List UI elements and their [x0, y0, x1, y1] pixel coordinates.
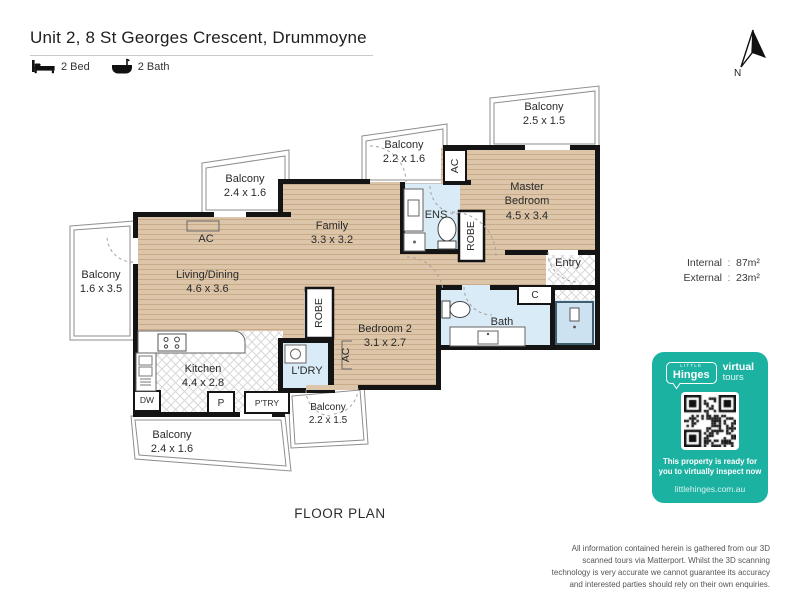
virtual-tour-badge: LITTLE Hinges virtual tours This propert… — [652, 352, 768, 503]
qr-code-frame — [681, 392, 739, 450]
room-label-ac-living: AC — [188, 232, 224, 246]
external-value: 23m² — [736, 271, 770, 286]
badge-message: This property is ready for you to virtua… — [658, 457, 762, 478]
room-label-ldry: L'DRY — [283, 364, 331, 378]
room-label-entry: Entry — [544, 256, 592, 270]
floorplan-page: Unit 2, 8 St Georges Crescent, Drummoyne… — [0, 0, 800, 600]
room-label-pantry-p: P — [209, 397, 233, 410]
area-summary: Internal : 87m² External : 23m² — [660, 256, 770, 286]
logo-bubble: LITTLE Hinges — [666, 362, 717, 384]
room-label-balcony-tm: Balcony2.2 x 1.6 — [363, 138, 445, 167]
qr-code — [684, 395, 736, 447]
room-label-kitchen: Kitchen4.4 x 2.8 — [158, 362, 248, 391]
room-label-balcony-tr: Balcony2.5 x 1.5 — [499, 100, 589, 129]
logo-tours-text: tours — [723, 373, 755, 383]
room-label-ptry: P'TRY — [245, 398, 289, 409]
floor-plan-caption: FLOOR PLAN — [270, 506, 410, 521]
logo-hinges-text: Hinges — [673, 369, 710, 381]
room-label-bath: Bath — [482, 315, 522, 329]
room-label-master: Master Bedroom4.5 x 3.4 — [487, 180, 567, 223]
room-label-robe-bed2: ROBE — [313, 293, 325, 333]
room-label-balcony-bl: Balcony2.4 x 1.6 — [127, 428, 217, 457]
internal-label: Internal — [660, 256, 722, 271]
little-hinges-logo: LITTLE Hinges virtual tours — [658, 362, 762, 384]
internal-separator: : — [722, 256, 736, 271]
room-label-closet: C — [521, 289, 549, 302]
internal-area-row: Internal : 87m² — [660, 256, 770, 271]
room-label-balcony-bm: Balcony2.2 x 1.5 — [291, 401, 365, 427]
external-label: External — [660, 271, 722, 286]
room-label-balcony-left: Balcony1.6 x 3.5 — [71, 268, 131, 297]
badge-message-line1: This property is ready for — [658, 457, 762, 468]
room-label-ens: ENS — [414, 208, 458, 222]
room-label-living: Living/Dining4.6 x 3.6 — [150, 268, 265, 297]
room-label-balcony-tl: Balcony2.4 x 1.6 — [203, 172, 287, 201]
room-label-ac-top: AC — [449, 151, 461, 181]
internal-value: 87m² — [736, 256, 770, 271]
room-label-robe-master: ROBE — [465, 216, 477, 256]
room-label-family: Family3.3 x 3.2 — [287, 219, 377, 248]
room-label-ac-bed2: AC — [340, 342, 352, 368]
external-separator: : — [722, 271, 736, 286]
badge-url: littlehinges.com.au — [658, 484, 762, 494]
logo-virtual-tours: virtual tours — [723, 362, 755, 383]
external-area-row: External : 23m² — [660, 271, 770, 286]
room-label-dw: DW — [134, 395, 160, 406]
badge-message-line2: you to virtually inspect now — [658, 467, 762, 478]
disclaimer-text: All information contained herein is gath… — [545, 543, 770, 591]
